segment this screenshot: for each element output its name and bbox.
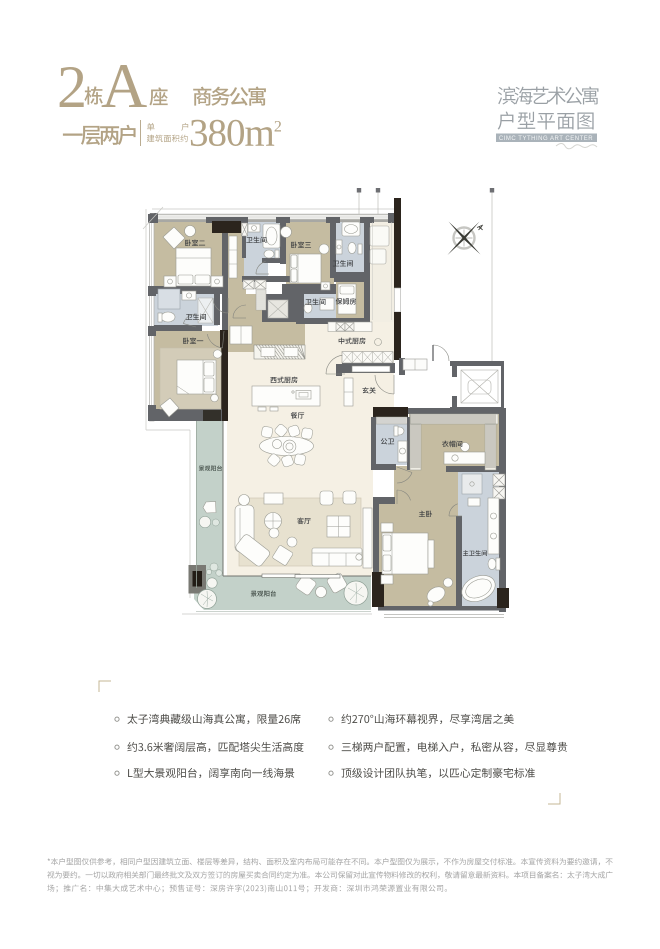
svg-text:A: A: [101, 50, 147, 121]
svg-text:2: 2: [57, 54, 87, 120]
svg-text:CIMC TYTHING ART CENTER: CIMC TYTHING ART CENTER: [499, 136, 593, 142]
svg-text:380m2: 380m2: [189, 112, 282, 155]
